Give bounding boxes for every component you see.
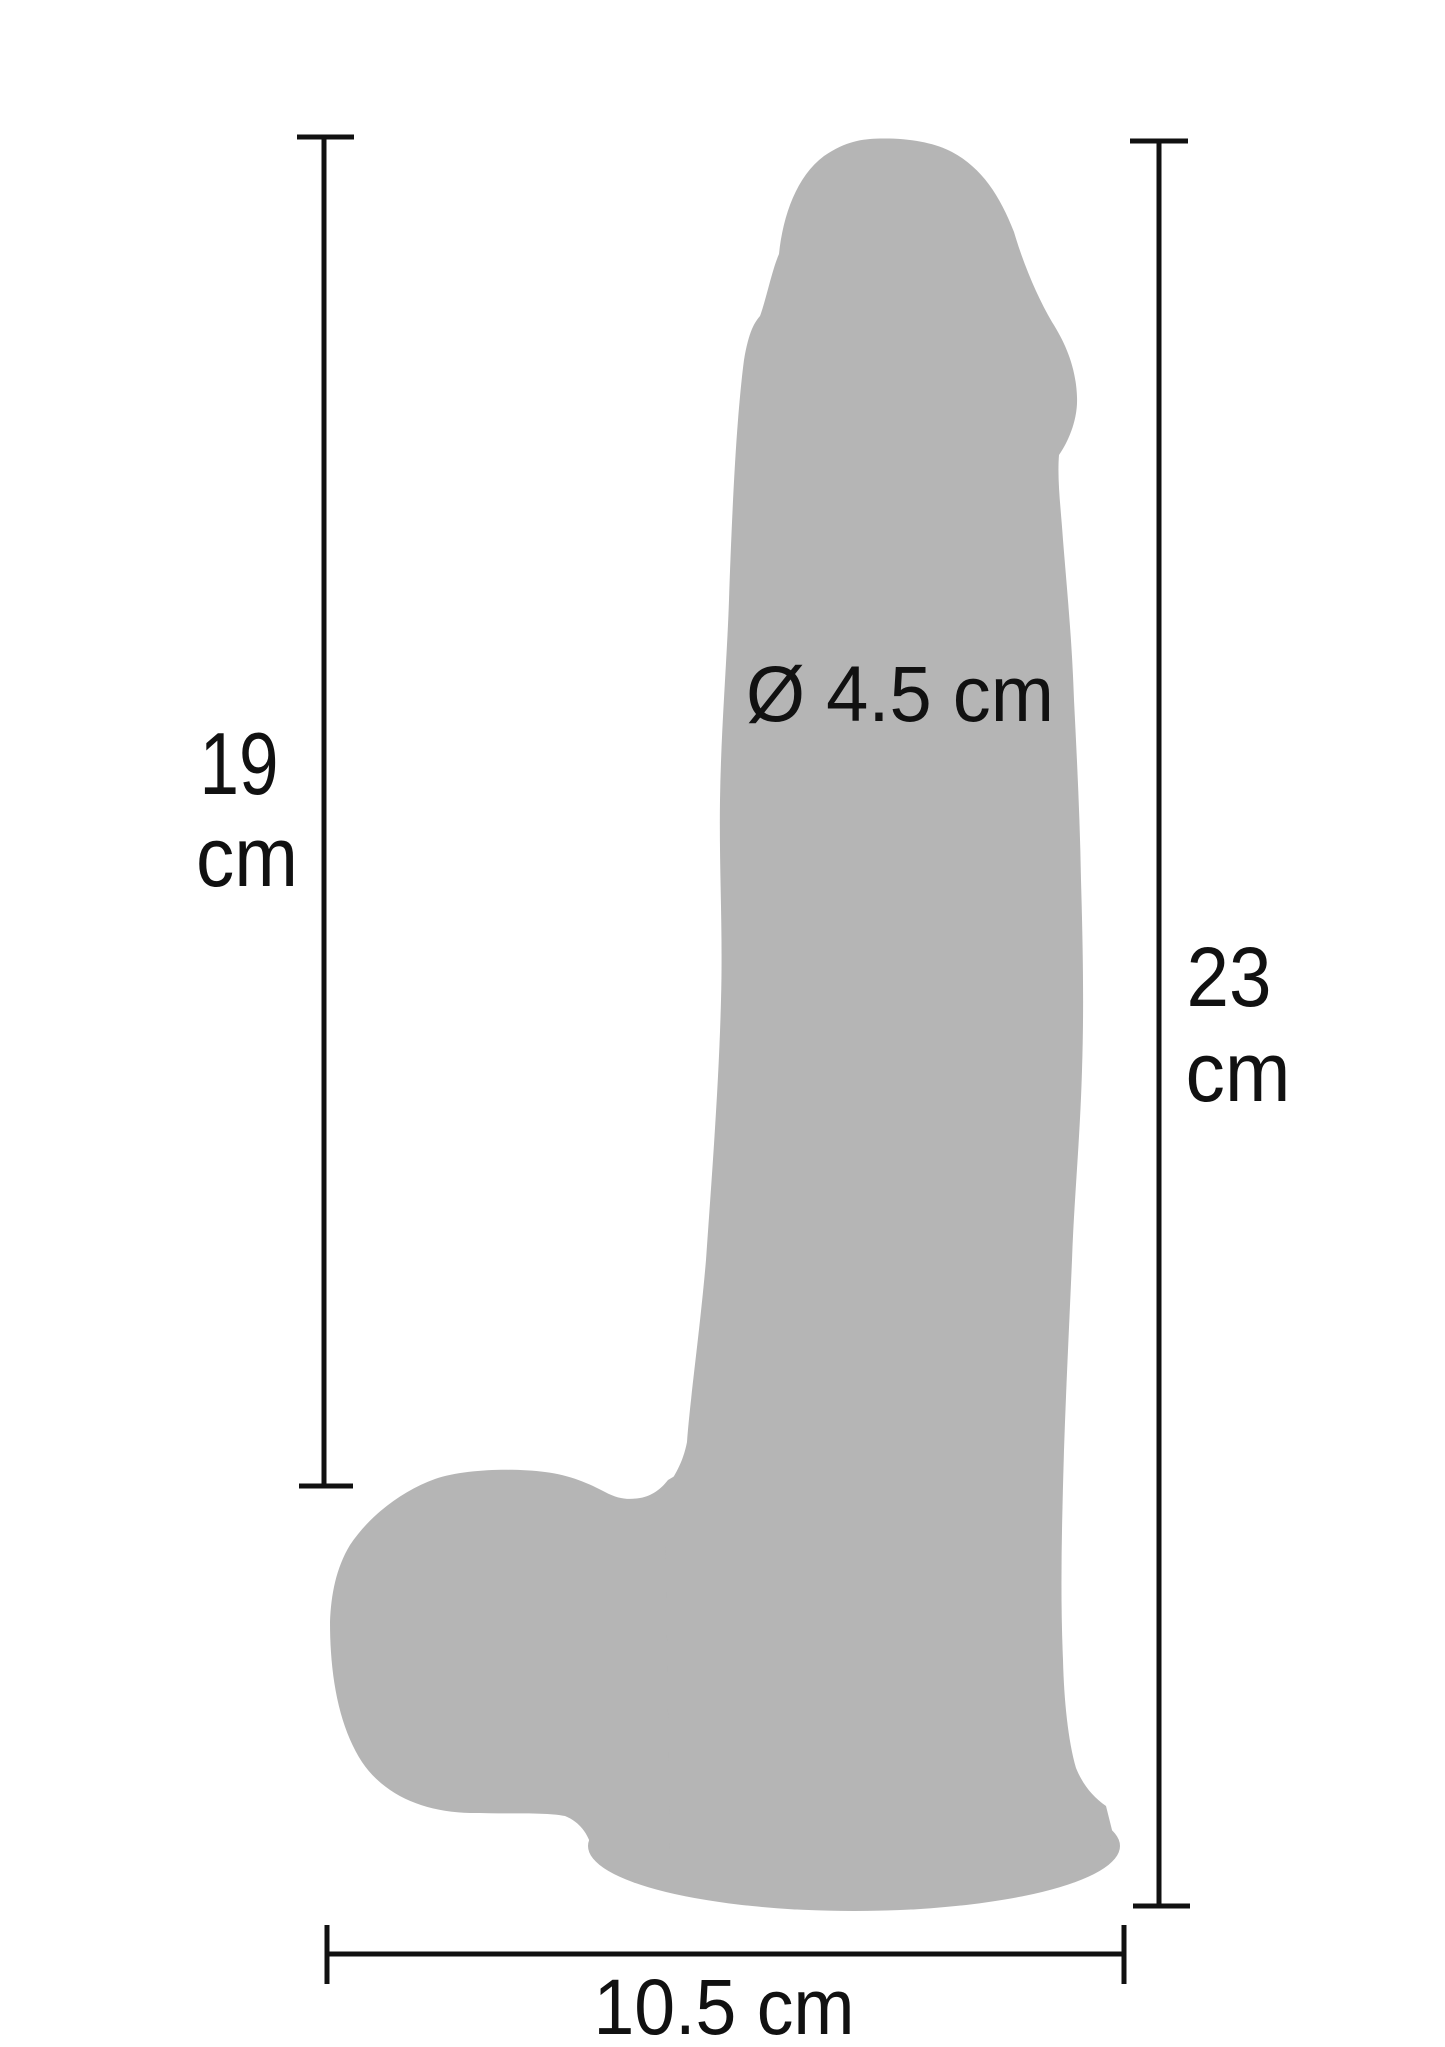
svg-text:cm: cm — [196, 810, 298, 904]
svg-text:10.5 cm: 10.5 cm — [594, 1962, 855, 2047]
svg-text:23: 23 — [1187, 930, 1272, 1024]
svg-text:cm: cm — [1186, 1025, 1291, 1119]
svg-text:Ø 4.5 cm: Ø 4.5 cm — [746, 649, 1054, 738]
svg-text:19: 19 — [200, 714, 279, 813]
